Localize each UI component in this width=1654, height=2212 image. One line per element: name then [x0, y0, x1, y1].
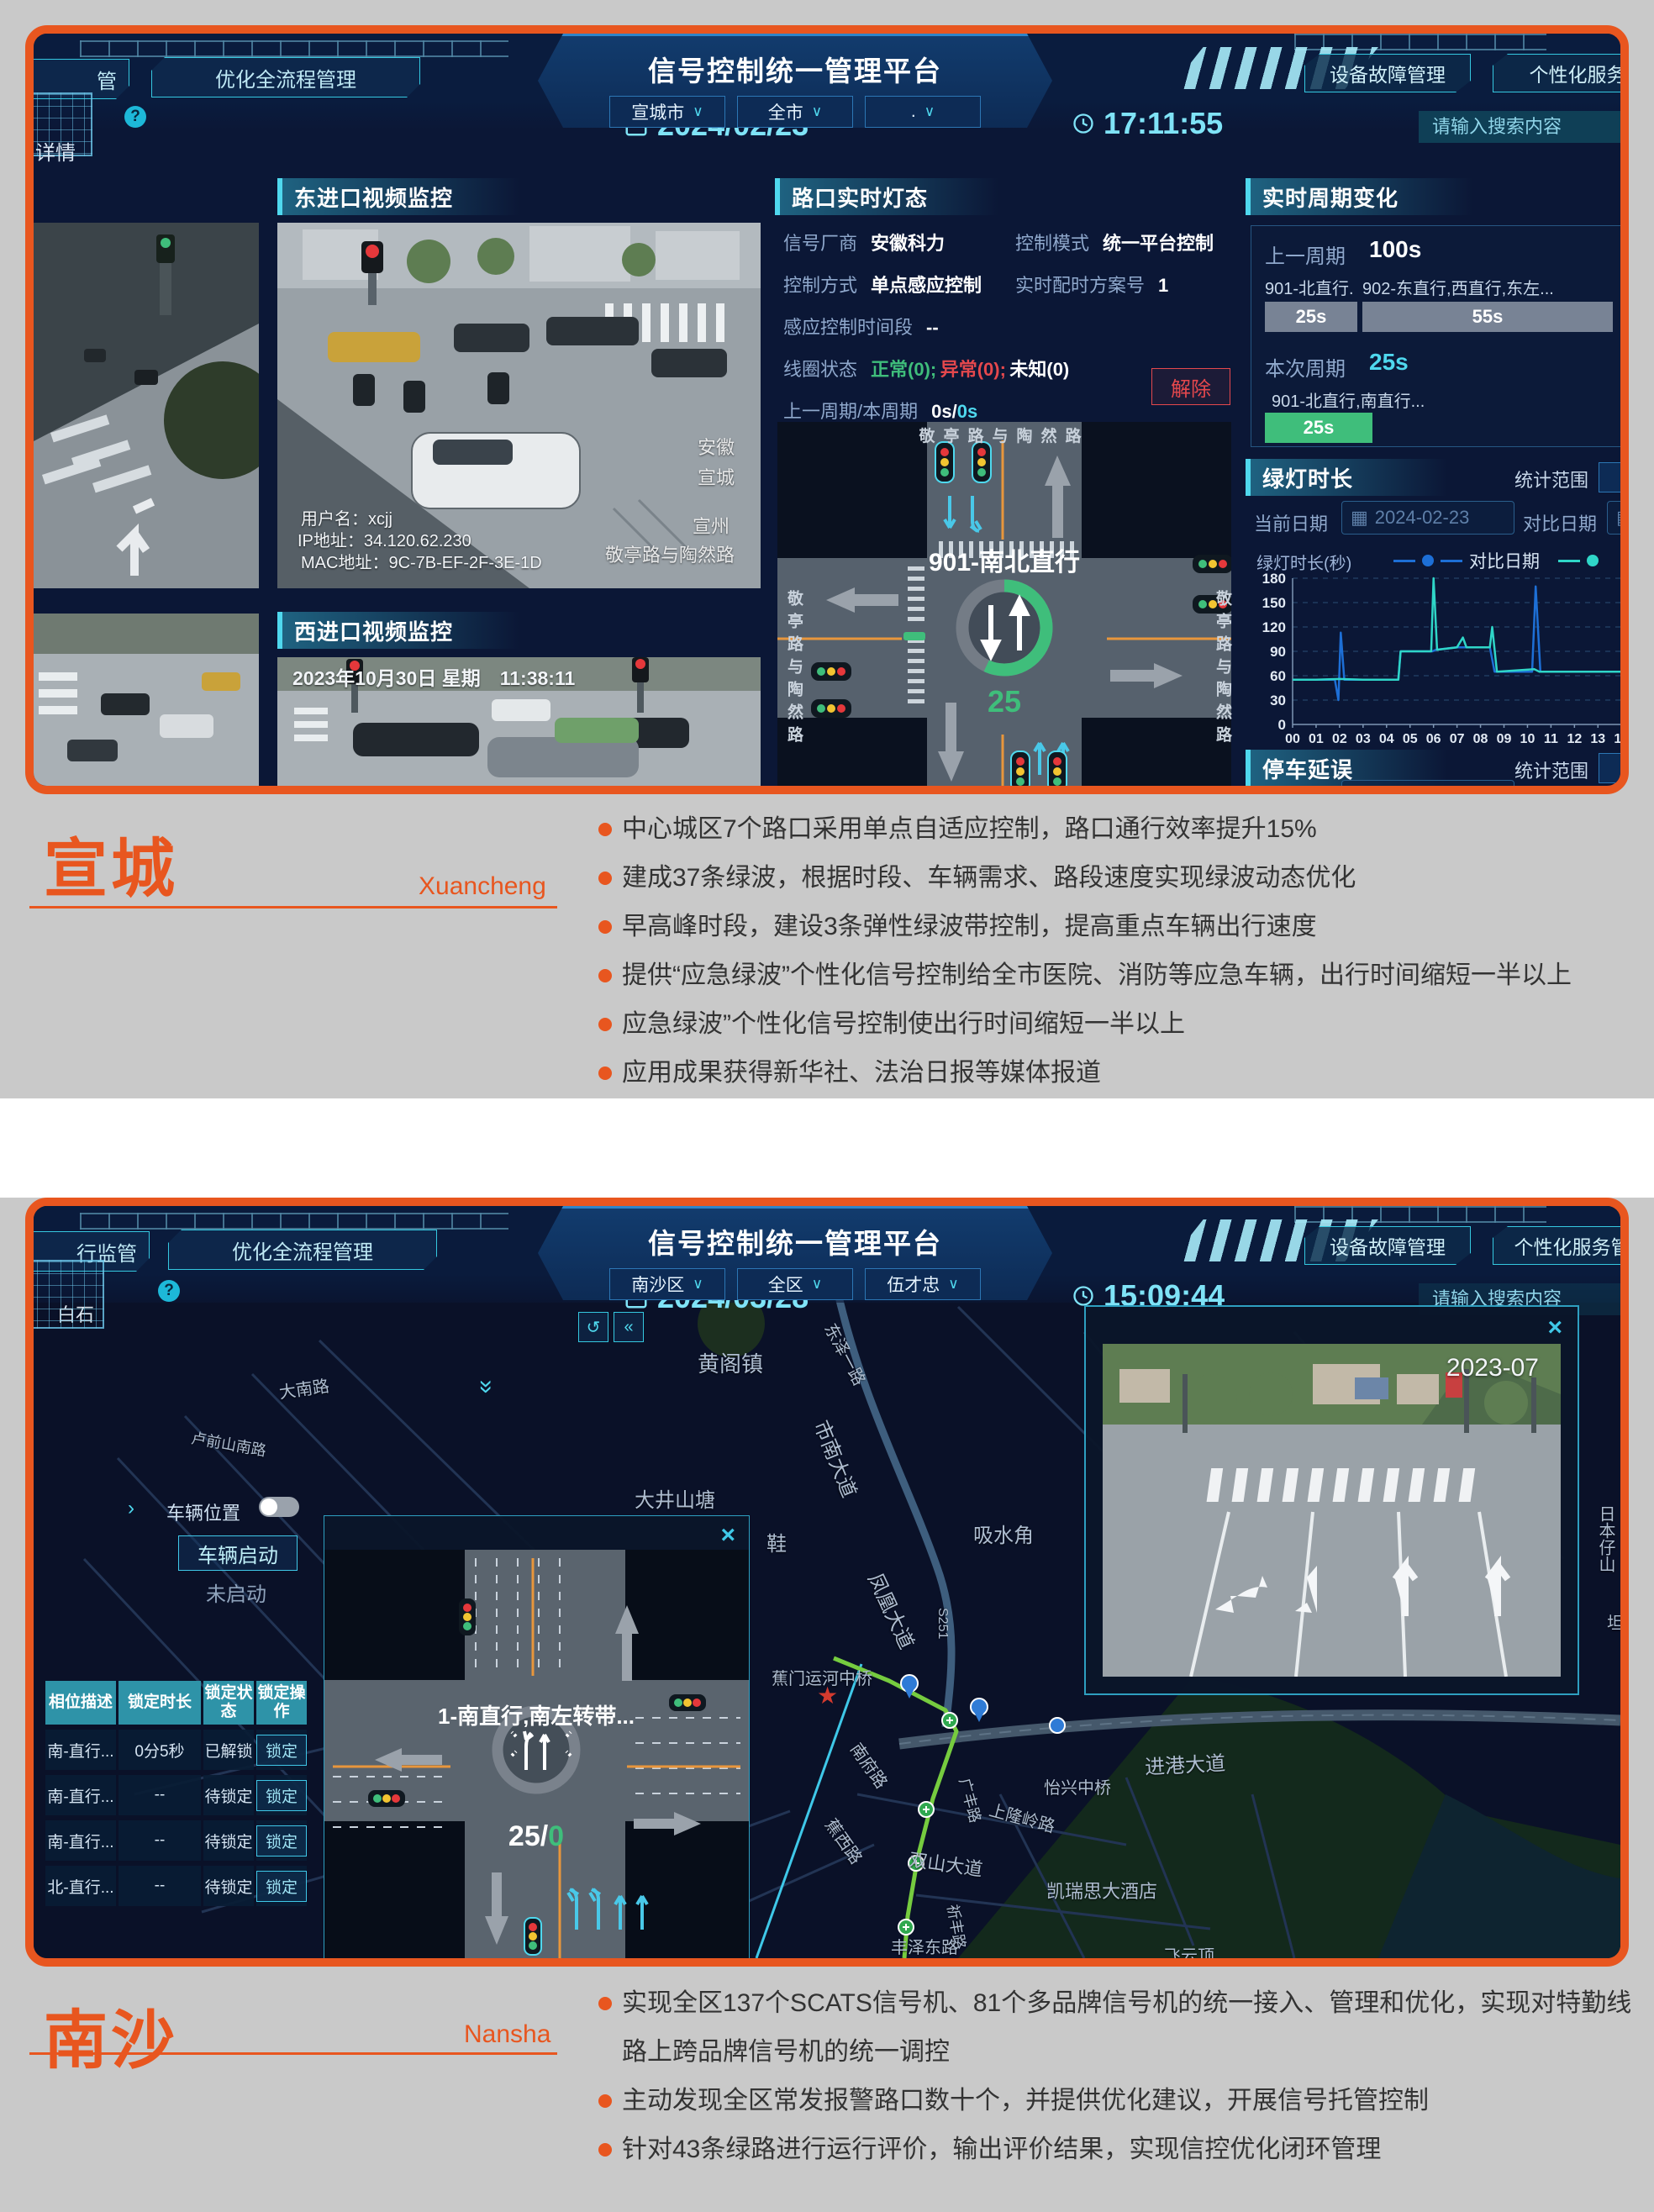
junction-popup: ×	[324, 1515, 750, 1960]
nav-tab-optimize[interactable]: 优化全流程管理	[151, 57, 420, 97]
dropdown-district[interactable]: 南沙区∨	[609, 1268, 725, 1300]
light-panel-title: 路口实时灯态	[775, 178, 998, 215]
video-popup: × 2023-0	[1084, 1305, 1579, 1695]
dropdown-district-value: 南沙区	[631, 1272, 684, 1297]
map-label: 凤凰大道	[862, 1567, 923, 1653]
cycle-cur: 0s	[957, 401, 977, 422]
map-label: 凯瑞思大酒店	[1046, 1877, 1157, 1904]
method-label: 控制方式	[783, 275, 857, 296]
table-header-cell: 锁定状态	[203, 1681, 254, 1725]
svg-text:07: 07	[1450, 732, 1465, 746]
prev-cycle-value: 100s	[1369, 236, 1421, 263]
table-action-cell: 锁定	[256, 1820, 307, 1861]
table-cell: 待锁定	[203, 1775, 254, 1815]
dropdown-user[interactable]: 伍才忠∨	[865, 1268, 981, 1300]
bullet-dot-icon	[598, 920, 612, 934]
video-overlay-mac: MAC地址：9C-7B-EF-2F-3E-1D	[301, 549, 542, 573]
map-label: 怡兴中桥	[1044, 1774, 1111, 1799]
map-label: 蕉门运河中桥	[772, 1665, 872, 1689]
svg-text:12: 12	[1567, 732, 1582, 746]
clock-icon	[1072, 1284, 1095, 1308]
map-label: 上隆岭路	[987, 1796, 1058, 1837]
bullet-dot-icon	[598, 2094, 612, 2108]
dropdown-area[interactable]: 全区∨	[737, 1268, 853, 1300]
dashboard-xuancheng: 管 优化全流程管理 ? 2024/02/23 信号控制统一管理平台 宣城市∨ 全…	[25, 25, 1629, 794]
cur-date-value: 2024-02-23	[1375, 507, 1470, 529]
popup-junction-roads	[324, 1550, 749, 1959]
bullet-text: 主动发现全区常发报警路口数十个，并提供优化建议，开展信号托管控制	[622, 2077, 1429, 2125]
cur-phase-name: 901-北直行,南直行...	[1272, 387, 1524, 412]
video-feed-west: 2023年10月30日 星期 11:38:11	[277, 657, 761, 786]
svg-text:60: 60	[1270, 668, 1286, 684]
platform-title: 信号控制统一管理平台	[538, 1221, 1052, 1261]
help-icon[interactable]: ?	[124, 106, 146, 128]
personal-service-label: 个性化服务管理	[1514, 1231, 1630, 1260]
calendar-icon: ▦	[1351, 507, 1368, 529]
light-panel-title-label: 路口实时灯态	[792, 182, 928, 213]
platform-title: 信号控制统一管理平台	[538, 49, 1052, 89]
cmp-date-input[interactable]: ▦2023-	[1607, 501, 1629, 535]
chevron-down-icon: ∨	[948, 1276, 958, 1293]
vendor-value: 安徽科力	[871, 233, 945, 254]
scope-dropdown-2[interactable]	[1599, 753, 1629, 783]
phase1-bar: 25s	[1265, 302, 1357, 332]
bullet-dot-icon	[598, 969, 612, 982]
table-cell: --	[119, 1820, 201, 1861]
video-left-image	[34, 223, 259, 588]
svg-text:01: 01	[1309, 732, 1324, 746]
table-action-cell: 锁定	[256, 1866, 307, 1906]
table-cell: 待锁定	[203, 1820, 254, 1861]
video-watermark-xuancheng: 宣城	[698, 463, 735, 490]
dropdown-area[interactable]: 全市∨	[737, 96, 853, 128]
video-overlay-user: 用户名：xcjj	[301, 505, 392, 529]
close-icon[interactable]: ×	[720, 1523, 735, 1548]
kv-coil: 线圈状态 正常(0); 异常(0); 未知(0)	[783, 355, 1069, 382]
chevron-down-icon: ∨	[693, 103, 703, 120]
chevron-down-icon: ∨	[924, 103, 935, 120]
prev-cycle-label: 上一周期	[1265, 240, 1346, 269]
svg-text:11: 11	[1544, 732, 1558, 746]
breadcrumb-partial: 详情	[35, 136, 76, 166]
video-east-title: 东进口视频监控	[277, 178, 519, 215]
junction-diagram: 敬亭路与陶然路 敬亭路与陶然路 敬亭路与陶然路 901-南北直行 25	[777, 422, 1231, 786]
page: 管 优化全流程管理 ? 2024/02/23 信号控制统一管理平台 宣城市∨ 全…	[0, 0, 1654, 2212]
svg-text:09: 09	[1497, 732, 1512, 746]
bullet-item: 早高峰时段，建设3条弹性绿波带控制，提高重点车辆出行速度	[598, 903, 1641, 951]
bullet-item: 应急绿波”个性化信号控制使出行时间缩短一半以上	[598, 1000, 1641, 1049]
bullet-text: 应急绿波”个性化信号控制使出行时间缩短一半以上	[622, 1000, 1185, 1049]
city-pinyin-xuancheng: Xuancheng	[419, 872, 546, 901]
video-watermark-road: 敬亭路与陶然路	[605, 540, 735, 567]
legend-line-teal	[1558, 560, 1580, 562]
junction-countdown: 25	[962, 684, 1046, 719]
undo-icon: ↺	[587, 1317, 601, 1338]
title-underline	[29, 906, 557, 908]
bullet-dot-icon	[598, 872, 612, 885]
svg-text:06: 06	[1426, 732, 1441, 746]
lock-button[interactable]: 锁定	[256, 1825, 307, 1856]
svg-text:120: 120	[1262, 619, 1286, 635]
mode-label: 控制模式	[1015, 233, 1089, 254]
video-overlay-ip: IP地址：34.120.62.230	[298, 527, 471, 551]
coil-unknown: 未知(0)	[1009, 359, 1069, 380]
popup-countdown: 25/0	[477, 1820, 595, 1853]
cmp-date-label: 对比日期	[1523, 509, 1597, 536]
table-header-cell: 锁定操作	[256, 1681, 307, 1725]
bullet-item: 实现全区137个SCATS信号机、81个多品牌信号机的统一接入、管理和优化，实现…	[598, 1979, 1641, 2077]
vehicle-position-label: 车辆位置	[166, 1498, 240, 1525]
kv-method: 控制方式 单点感应控制	[783, 271, 982, 298]
table-cell: 南-直行...	[45, 1775, 116, 1815]
junction-phase: 901-南北直行	[903, 541, 1105, 578]
search-input[interactable]	[1419, 111, 1629, 143]
collapse-button[interactable]: «	[614, 1312, 644, 1342]
bullet-text: 应用成果获得新华社、法治日报等媒体报道	[622, 1049, 1101, 1098]
cur-date-input[interactable]: ▦2024-02-23	[1341, 501, 1514, 535]
nav-tab-optimize[interactable]: 优化全流程管理	[168, 1230, 437, 1270]
phase2-bar: 55s	[1362, 302, 1613, 332]
table-header-cell: 相位描述	[45, 1681, 116, 1725]
clock-icon	[1072, 112, 1095, 135]
map-label: 日本仔山	[1593, 1505, 1618, 1572]
table-action-cell: 锁定	[256, 1775, 307, 1815]
device-fault-label: 设备故障管理	[1330, 59, 1446, 87]
city-title-nansha: 南沙	[44, 1988, 178, 2081]
bullet-dot-icon	[598, 1018, 612, 1031]
greenlight-panel-title: 绿灯时长	[1246, 459, 1447, 496]
map-label: S251	[935, 1608, 950, 1639]
table-cell: 0分5秒	[119, 1730, 201, 1770]
dropdown-area-value: 全市	[768, 99, 803, 124]
undo-button[interactable]: ↺	[578, 1312, 608, 1342]
map-label: 大南路	[277, 1372, 330, 1404]
nav-tab-partial-label: 管	[97, 65, 117, 94]
dashboard-nansha: ★ 白石黄阁镇大南路卢前山南路东泽一路市南大道大井山塘凤凰大道吸水角鞋S251蕉…	[25, 1198, 1629, 1967]
svg-text:30: 30	[1270, 693, 1286, 708]
map-label: 东泽一路	[819, 1319, 872, 1389]
bullet-text: 实现全区137个SCATS信号机、81个多品牌信号机的统一接入、管理和优化，实现…	[622, 1979, 1641, 2077]
table-cell: --	[119, 1775, 201, 1815]
dash1-header: 管 优化全流程管理 ? 2024/02/23 信号控制统一管理平台 宣城市∨ 全…	[34, 34, 1620, 130]
bullet-text: 早高峰时段，建设3条弹性绿波带控制，提高重点车辆出行速度	[622, 903, 1317, 951]
bullet-item: 应用成果获得新华社、法治日报等媒体报道	[598, 1049, 1641, 1098]
title-underline	[29, 2052, 557, 2055]
table-action-cell: 锁定	[256, 1730, 307, 1770]
table-cell: 北-直行...	[45, 1866, 116, 1906]
close-icon[interactable]: ×	[1547, 1315, 1562, 1340]
cur-cycle-value: 25s	[1369, 349, 1409, 376]
svg-text:00: 00	[1285, 732, 1300, 746]
popup-countdown-green: 0	[548, 1820, 564, 1852]
popup-video-timestamp: 2023-07	[1446, 1354, 1539, 1382]
cycle-panel: 上一周期 100s 901-北直行... 902-东直行,西直行,东左... 2…	[1251, 225, 1629, 447]
lock-button[interactable]: 锁定	[256, 1735, 307, 1766]
table-cell: 南-直行...	[45, 1730, 116, 1770]
region-dropdowns: 南沙区∨ 全区∨ 伍才忠∨	[538, 1268, 1052, 1300]
nav-tab-optimize-label: 优化全流程管理	[215, 63, 356, 92]
bullet-text: 提供“应急绿波”个性化信号控制给全市医院、消防等应急车辆，出行时间缩短一半以上	[622, 951, 1572, 1000]
deco-squares-left	[80, 1213, 508, 1230]
greenlight-chart: 0306090120150180000102030405060708091011…	[1254, 571, 1620, 750]
table-cell: 待锁定	[203, 1866, 254, 1906]
map-label: 南府路	[845, 1737, 894, 1793]
map-label: 大井山塘	[635, 1483, 715, 1513]
table-cell: --	[119, 1866, 201, 1906]
video-feed-east: 用户名：xcjj IP地址：34.120.62.230 MAC地址：9C-7B-…	[277, 223, 761, 588]
calendar-icon: ▦	[1616, 507, 1629, 529]
mini-map-grid	[25, 1260, 104, 1329]
region-dropdowns: 宣城市∨ 全市∨ .∨	[538, 96, 1052, 128]
chart-y-label: 绿灯时长(秒)	[1256, 550, 1351, 574]
map-label: 鞋	[766, 1527, 787, 1556]
dropdown-user-value: 伍才忠	[887, 1272, 940, 1297]
popup-countdown-white: 25/	[508, 1820, 548, 1852]
kv-vendor: 信号厂商 安徽科力	[783, 229, 945, 255]
device-fault-button[interactable]: 设备故障管理	[1304, 54, 1471, 92]
chevron-double-down-icon[interactable]: «	[470, 1380, 498, 1394]
chevron-down-icon: ∨	[812, 1276, 822, 1293]
map-label: 吸水角	[973, 1519, 1034, 1548]
svg-text:150: 150	[1262, 595, 1286, 611]
legend-dot-teal	[1587, 555, 1599, 566]
legend-cmp-label: 对比日期	[1469, 548, 1540, 573]
bullet-list-xuancheng: 中心城区7个路口采用单点自适应控制，路口通行效率提升15%建成37条绿波，根据时…	[598, 805, 1641, 1098]
expand-arrow-icon[interactable]: ›	[128, 1497, 134, 1520]
video-west-timestamp: 2023年10月30日 星期 11:38:11	[292, 662, 575, 691]
junction-roads	[777, 422, 1231, 786]
cycle-panel-title-label: 实时周期变化	[1262, 182, 1399, 213]
svg-text:10: 10	[1520, 732, 1535, 746]
cycle-panel-title: 实时周期变化	[1246, 178, 1472, 215]
help-icon[interactable]: ?	[158, 1280, 180, 1302]
table-cell: 南-直行...	[45, 1820, 116, 1861]
vehicle-start-label: 车辆启动	[198, 1539, 278, 1568]
dropdown-city[interactable]: 宣城市∨	[609, 96, 725, 128]
video-west-title: 西进口视频监控	[277, 612, 519, 649]
deco-squares-left	[80, 40, 508, 57]
delay-cur-date-value: 2024-02-23	[1375, 786, 1470, 794]
chart-svg: 0306090120150180000102030405060708091011…	[1254, 571, 1620, 750]
dropdown-user-value: .	[911, 102, 916, 122]
bullet-dot-icon	[598, 1066, 612, 1080]
dropdown-area-value: 全区	[768, 1272, 803, 1297]
map-label: 进港大道	[1144, 1746, 1226, 1780]
map-label: 市南大道	[809, 1415, 866, 1501]
lock-button[interactable]: 锁定	[256, 1871, 307, 1902]
scope-dropdown[interactable]	[1599, 462, 1629, 492]
bullet-text: 建成37条绿波，根据时段、车辆需求、路段速度实现绿波动态优化	[622, 854, 1356, 903]
video-feed-left	[34, 223, 259, 588]
svg-text:90: 90	[1270, 644, 1286, 660]
phase2-name: 902-东直行,西直行,东左...	[1362, 275, 1606, 299]
dropdown-user[interactable]: .∨	[865, 96, 981, 128]
bullet-list-nansha: 实现全区137个SCATS信号机、81个多品牌信号机的统一接入、管理和优化，实现…	[598, 1979, 1641, 2174]
header-time: 17:11:55	[1072, 106, 1223, 141]
map-label: 丰泽东路	[891, 1934, 958, 1958]
scope-label: 统计范围	[1514, 466, 1588, 492]
junction-road-left: 敬亭路与陶然路	[782, 590, 805, 749]
junction-road-right: 敬亭路与陶然路	[1211, 590, 1234, 749]
chevron-down-icon: ∨	[812, 103, 822, 120]
device-fault-label: 设备故障管理	[1330, 1231, 1446, 1260]
cur-date-label: 当前日期	[1254, 509, 1328, 536]
bullet-item: 针对43条绿路进行运行评价，输出评价结果，实现信控优化闭环管理	[598, 2125, 1641, 2174]
dropdown-city-value: 宣城市	[631, 99, 684, 124]
kv-plan: 实时配时方案号 1	[1015, 271, 1168, 298]
period-value: --	[926, 317, 939, 338]
chart-legend: 对比日期	[1393, 548, 1599, 573]
phase1-name: 901-北直行...	[1265, 275, 1354, 299]
bullet-text: 针对43条绿路进行运行评价，输出评价结果，实现信控优化闭环管理	[622, 2125, 1381, 2174]
personal-service-button[interactable]: 个性化服务	[1493, 54, 1629, 92]
delay-title-label: 停车延误	[1262, 753, 1353, 784]
cur-phase-bar: 25s	[1265, 413, 1372, 443]
popup-video-image	[1103, 1344, 1561, 1677]
svg-text:05: 05	[1403, 732, 1418, 746]
junction-road-top: 敬亭路与陶然路	[878, 424, 1130, 446]
plan-value: 1	[1158, 275, 1168, 296]
map-label: 坦	[1607, 1609, 1624, 1634]
bullet-dot-icon	[598, 823, 612, 836]
period-label: 感应控制时间段	[783, 317, 913, 338]
cycle-label: 上一周期/本周期	[783, 401, 918, 422]
cur-cycle-label: 本次周期	[1265, 352, 1346, 382]
city-title-xuancheng: 宣城	[44, 817, 178, 909]
collapse-left-icon: «	[624, 1318, 633, 1337]
delay-cur-date-input[interactable]: ▦2024-02-23	[1341, 780, 1514, 794]
map-label: 蕉西路	[820, 1813, 869, 1868]
map-label: 飞云顶	[1164, 1942, 1214, 1967]
svg-text:0: 0	[1278, 717, 1286, 733]
popup-phase: 1-南直行,南左转带...	[435, 1699, 637, 1730]
bullet-text: 中心城区7个路口采用单点自适应控制，路口通行效率提升15%	[622, 805, 1317, 854]
video-watermark-xuanzhou: 宣州	[693, 512, 730, 539]
svg-text:14: 14	[1614, 732, 1620, 746]
personal-service-label: 个性化服务	[1530, 59, 1626, 87]
header-time-text: 17:11:55	[1104, 106, 1223, 141]
release-button-label: 解除	[1171, 372, 1211, 402]
table-cell: 已解锁	[203, 1730, 254, 1770]
vehicle-position-toggle[interactable]	[259, 1497, 299, 1517]
legend-line-blue	[1393, 560, 1415, 562]
section-separator	[0, 1098, 1654, 1198]
svg-text:02: 02	[1332, 732, 1347, 746]
phase-lock-table: 相位描述锁定时长锁定状态锁定操作南-直行...0分5秒已解锁锁定南-直行...-…	[45, 1681, 306, 1906]
bullet-item: 主动发现全区常发报警路口数十个，并提供优化建议，开展信号托管控制	[598, 2077, 1641, 2125]
bullet-dot-icon	[598, 2143, 612, 2157]
delay-cmp-date-label: 对比日期	[1523, 788, 1597, 794]
calendar-icon: ▦	[1351, 786, 1368, 794]
release-button[interactable]: 解除	[1151, 368, 1230, 405]
coil-label: 线圈状态	[783, 359, 857, 380]
video-bottom-left-image	[34, 614, 259, 786]
bullet-dot-icon	[598, 1997, 612, 2010]
device-fault-button[interactable]: 设备故障管理	[1304, 1226, 1471, 1265]
svg-text:13: 13	[1590, 732, 1605, 746]
delay-cur-date-label: 当前日期	[1254, 788, 1328, 794]
legend-line-blue	[1441, 560, 1462, 562]
mode-value: 统一平台控制	[1103, 233, 1214, 254]
dash2-header: 行监管 优化全流程管理 ? 2024/03/28 信号控制统一管理平台 南沙区∨…	[34, 1206, 1620, 1303]
kv-period: 感应控制时间段 --	[783, 313, 939, 340]
toggle-knob	[261, 1498, 277, 1515]
cycle-prev: 0s/	[931, 401, 957, 422]
kv-cycle: 上一周期/本周期 0s/0s	[783, 397, 977, 424]
nav-tab-optimize-label: 优化全流程管理	[232, 1235, 373, 1265]
video-feed-bottom-left	[34, 614, 259, 786]
coil-abnormal: 异常(0);	[940, 359, 1006, 380]
svg-text:08: 08	[1473, 732, 1488, 746]
legend-dot-blue	[1422, 555, 1434, 566]
map-label: 黄阁镇	[698, 1347, 763, 1378]
bullet-item: 提供“应急绿波”个性化信号控制给全市医院、消防等应急车辆，出行时间缩短一半以上	[598, 951, 1641, 1000]
svg-text:180: 180	[1262, 571, 1286, 587]
video-watermark-anhui: 安徽	[698, 433, 735, 460]
svg-text:03: 03	[1356, 732, 1371, 746]
chevron-down-icon: ∨	[693, 1276, 703, 1293]
plan-label: 实时配时方案号	[1015, 275, 1145, 296]
video-west-title-label: 西进口视频监控	[294, 615, 453, 646]
city-pinyin-nansha: Nansha	[464, 2020, 550, 2049]
video-east-title-label: 东进口视频监控	[294, 182, 453, 213]
vehicle-start-button[interactable]: 车辆启动	[178, 1535, 298, 1571]
bullet-item: 建成37条绿波，根据时段、车辆需求、路段速度实现绿波动态优化	[598, 854, 1641, 903]
table-header-cell: 锁定时长	[119, 1681, 201, 1725]
vendor-label: 信号厂商	[783, 233, 857, 254]
lock-button[interactable]: 锁定	[256, 1780, 307, 1811]
not-started-status: 未启动	[206, 1577, 266, 1607]
method-value: 单点感应控制	[871, 275, 982, 296]
coil-normal: 正常(0);	[871, 359, 936, 380]
greenlight-title-label: 绿灯时长	[1262, 462, 1353, 493]
bullet-item: 中心城区7个路口采用单点自适应控制，路口通行效率提升15%	[598, 805, 1641, 854]
personal-service-button[interactable]: 个性化服务管理	[1493, 1226, 1629, 1265]
map-label: 双山大道	[908, 1845, 985, 1882]
map-label: 卢前山南路	[190, 1426, 268, 1461]
scope-label-2: 统计范围	[1514, 756, 1588, 783]
kv-mode: 控制模式 统一平台控制	[1015, 229, 1214, 255]
map-label: 广丰路	[954, 1776, 987, 1825]
svg-text:04: 04	[1379, 732, 1394, 746]
